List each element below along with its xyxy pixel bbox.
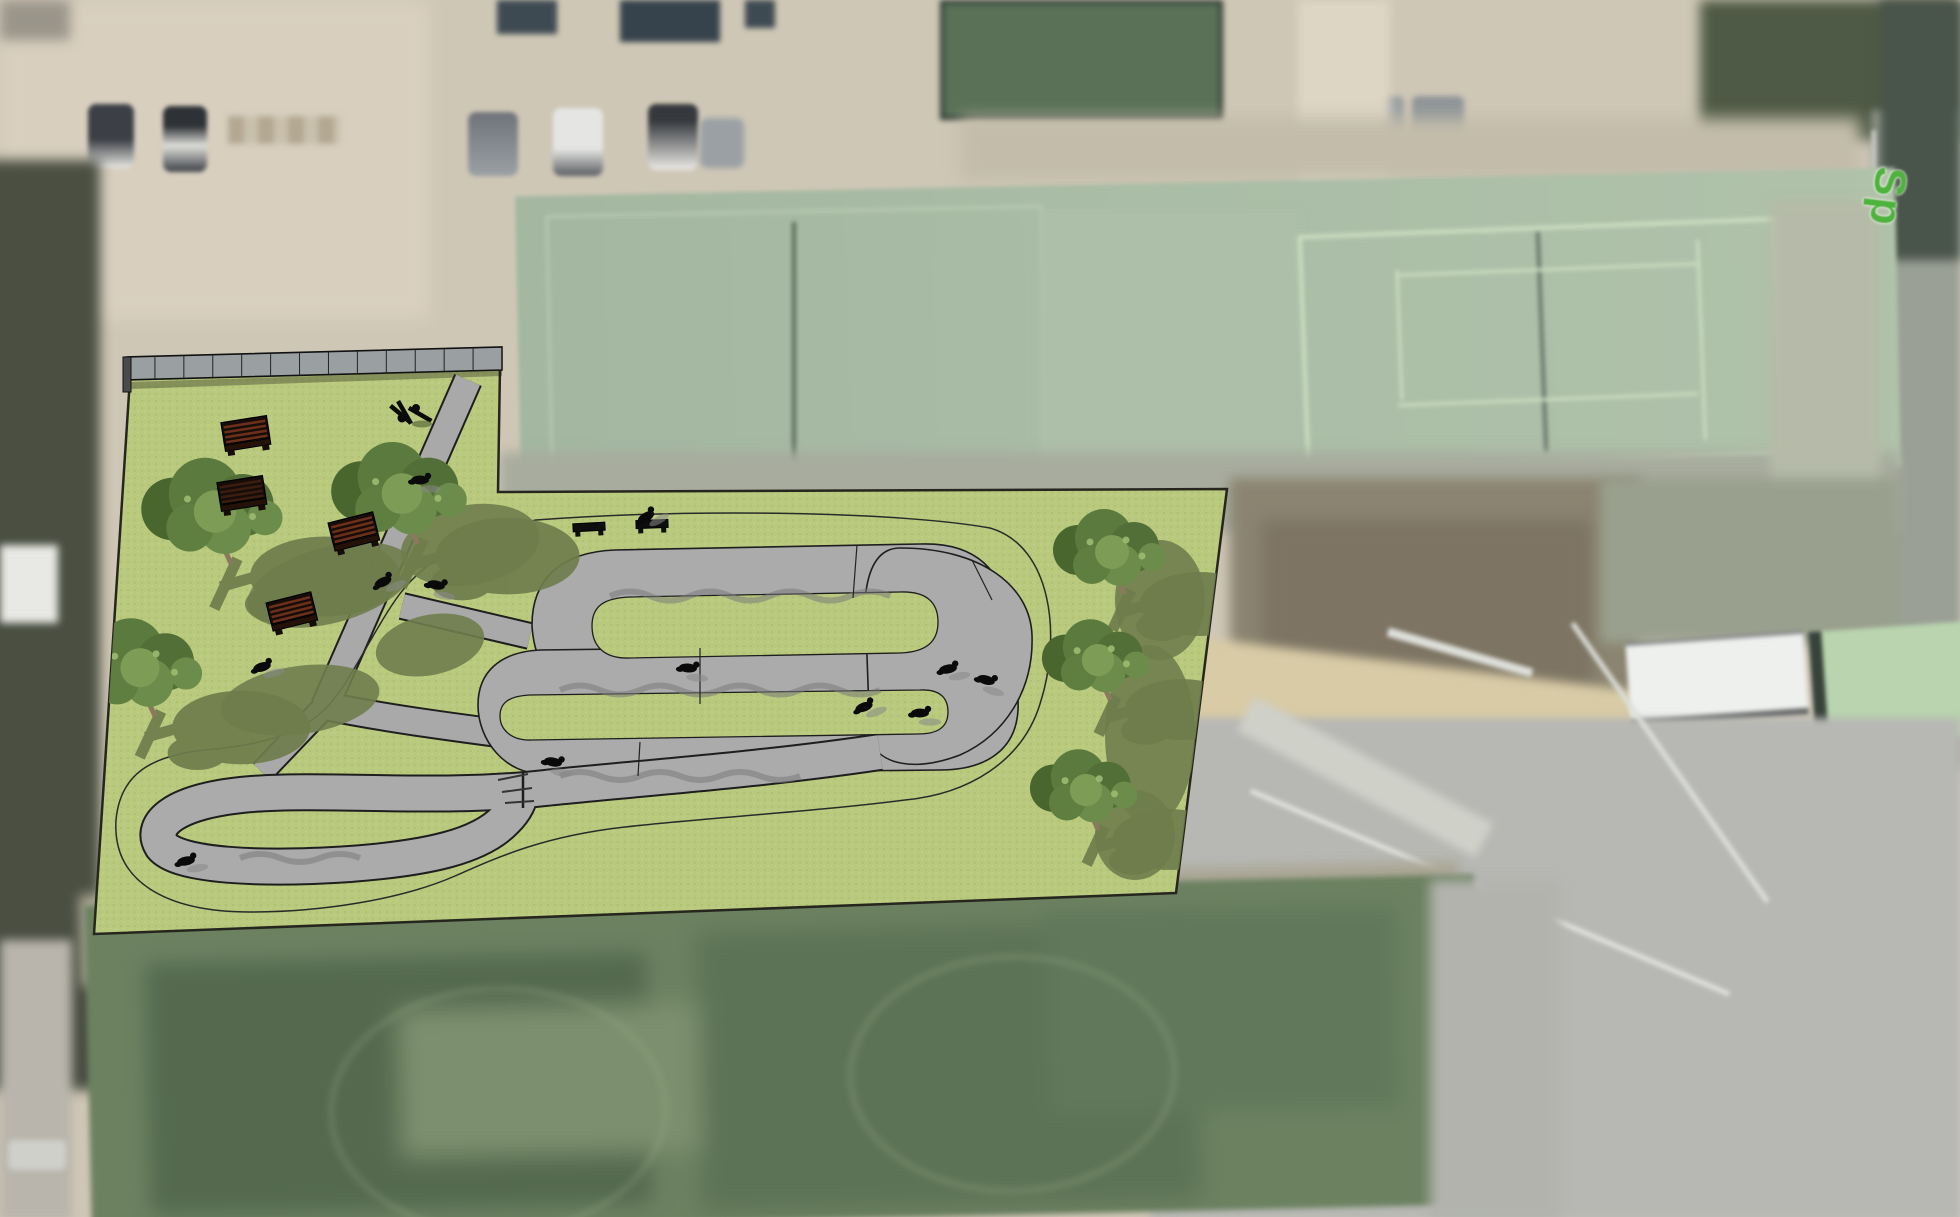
island-upper [592,592,938,658]
aerial-screenshot: Sp [0,0,1960,1217]
island-lower [500,690,948,740]
site-plan-overlay [0,0,1960,1217]
